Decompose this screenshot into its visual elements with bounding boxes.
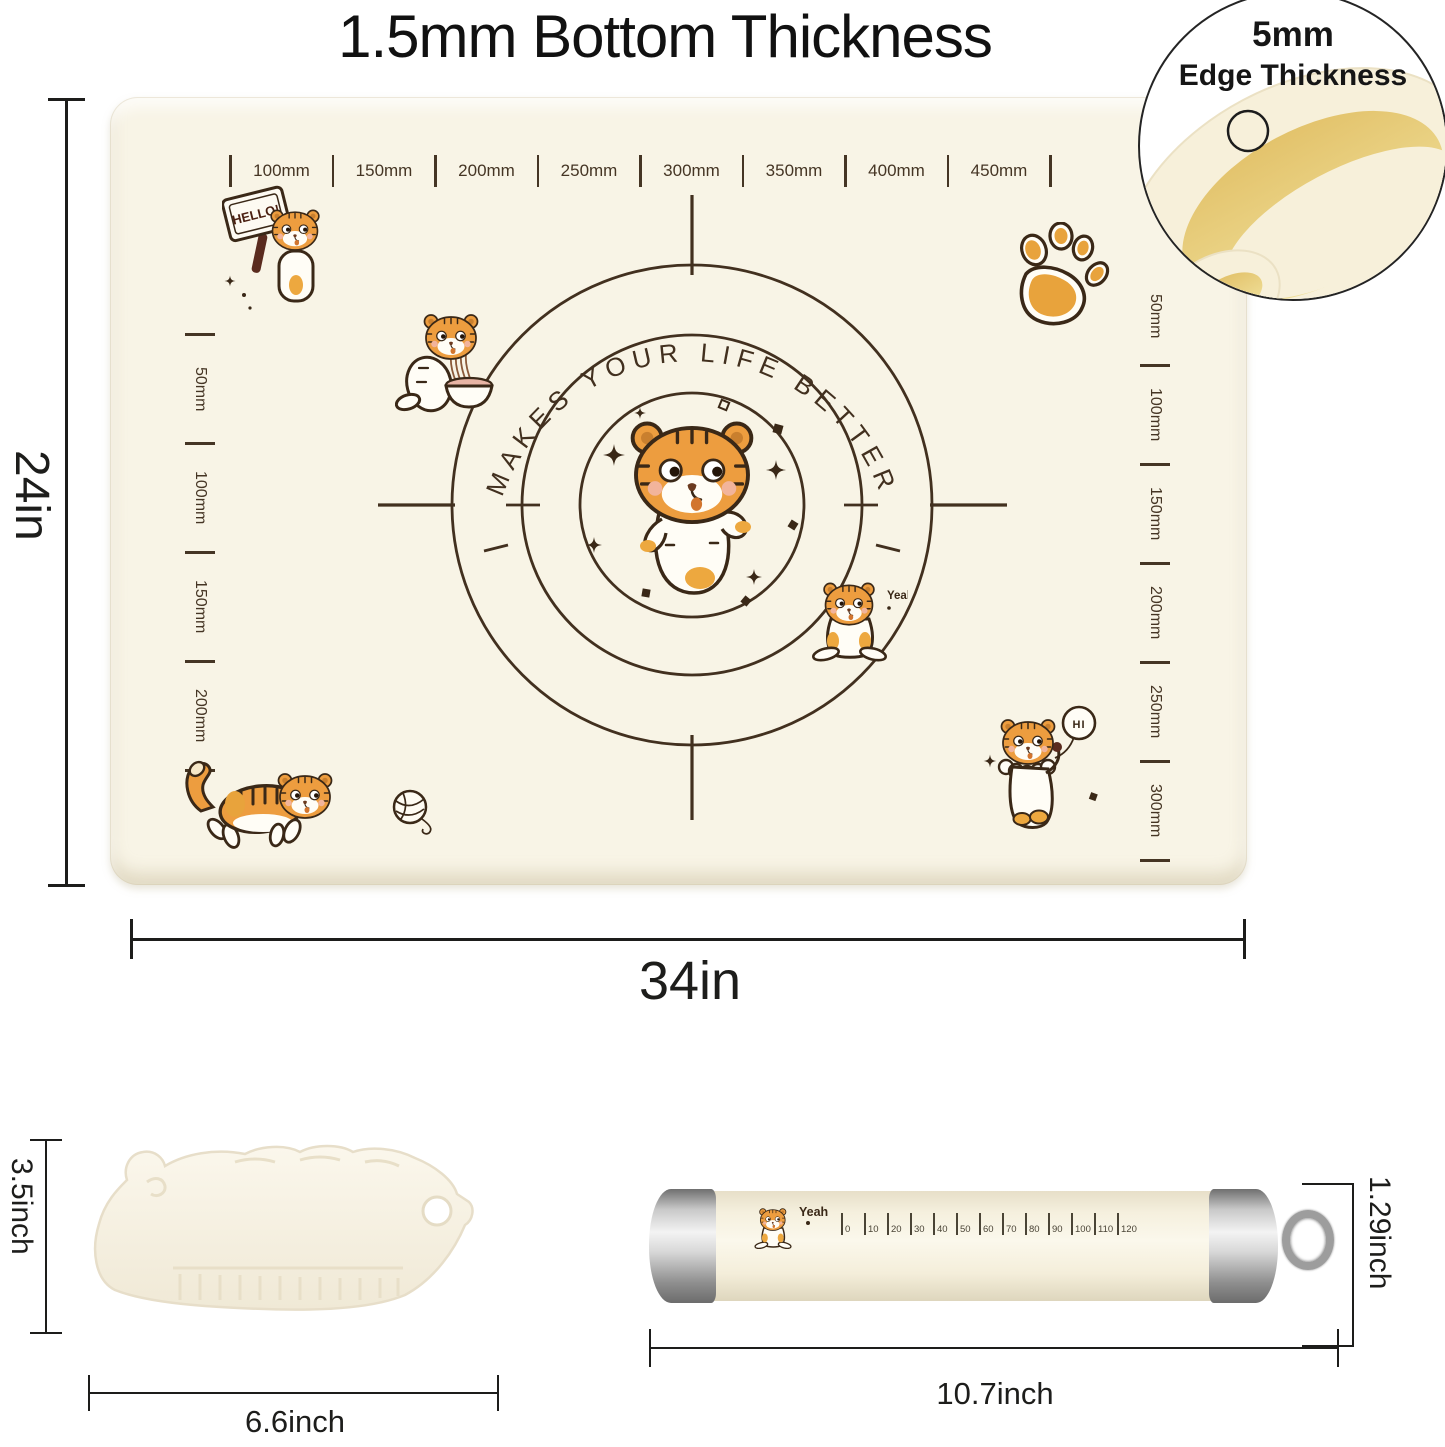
mat-ruler-label: 100mm: [1146, 367, 1164, 463]
pin-scale-number: 110: [1098, 1224, 1113, 1235]
pin-scale-number: 60: [983, 1224, 994, 1235]
mat-height-dim-line: [65, 99, 68, 886]
pin-scale-tick: [887, 1213, 889, 1235]
dough-scraper: [85, 1128, 487, 1340]
mat-ruler-label: 200mm: [1146, 565, 1164, 661]
pin-scale-tick: [1071, 1213, 1073, 1235]
mat-height-dim-tick-bottom: [48, 884, 85, 887]
page-title: 1.5mm Bottom Thickness: [0, 2, 1330, 71]
pin-scale-unit: 40: [933, 1213, 956, 1257]
mat-ruler-label: 300mm: [1146, 763, 1164, 859]
pin-length-dim-line: [650, 1347, 1339, 1349]
tiger-hi-sticker: HI: [982, 697, 1102, 847]
scraper-height-dim-tick-bottom: [30, 1332, 62, 1334]
baking-mat: 100mm150mm200mm250mm300mm350mm400mm450mm…: [110, 97, 1247, 885]
pin-scale-tick: [1025, 1213, 1027, 1235]
pin-scale-tick: [864, 1213, 866, 1235]
scraper-hang-hole: [423, 1197, 451, 1225]
scraper-width-dim-line: [89, 1392, 499, 1394]
product-dimension-diagram: 1.5mm Bottom Thickness 100mm150mm200mm25…: [0, 0, 1445, 1447]
mat-ruler-label: 150mm: [191, 554, 209, 660]
yarn-ball-icon: [388, 785, 438, 837]
pin-cap-right: [1209, 1189, 1278, 1303]
pin-scale-number: 10: [868, 1224, 879, 1235]
mat-ruler-label: 100mm: [232, 161, 332, 181]
pin-cap-left: [649, 1189, 716, 1303]
mat-ruler-label: 100mm: [191, 445, 209, 551]
pin-scale-tick: [1048, 1213, 1050, 1235]
edge-thickness-inset: 5mm Edge Thickness: [1138, 0, 1445, 301]
pin-scale-unit: 100: [1071, 1213, 1094, 1257]
mat-center-target: MAKES YOUR LIFE BETTER: [362, 175, 1022, 835]
pin-scale-number: 80: [1029, 1224, 1040, 1235]
pin-scale-unit: 120: [1117, 1213, 1140, 1257]
scraper-height-dim-tick-top: [30, 1139, 62, 1141]
paw-print-icon: [1010, 222, 1110, 330]
pin-diameter-dim-line: [1352, 1184, 1354, 1347]
scraper-width-dim-tick-left: [88, 1375, 90, 1411]
scraper-height-label: 3.5inch: [4, 1158, 38, 1318]
pin-scale-tick: [1117, 1213, 1119, 1235]
mat-ruler-label: 50mm: [191, 336, 209, 442]
pin-scale-number: 0: [845, 1224, 850, 1235]
pin-scale-unit: 10: [864, 1213, 887, 1257]
pin-scale-tick: [1002, 1213, 1004, 1235]
pin-scale-number: 30: [914, 1224, 925, 1235]
pin-scale-unit: 30: [910, 1213, 933, 1257]
mat-ruler-tick: [1140, 859, 1170, 862]
tiger-noodles-sticker: [395, 298, 505, 423]
mat-width-dim-tick-right: [1243, 919, 1246, 959]
scraper-width-dim-tick-right: [497, 1375, 499, 1411]
scraper-width-label: 6.6inch: [190, 1404, 400, 1440]
rolling-pin: Yeah 0102030405060708090100110120: [649, 1189, 1341, 1303]
pin-dot: [806, 1221, 810, 1225]
pin-scale-number: 100: [1075, 1224, 1091, 1235]
pin-scale-unit: 70: [1002, 1213, 1025, 1257]
pin-scale-unit: 110: [1094, 1213, 1117, 1257]
pin-length-dim-tick-left: [649, 1329, 651, 1367]
mat-ruler-label: 150mm: [1146, 466, 1164, 562]
pin-scale-unit: 0: [841, 1213, 864, 1257]
pin-scale-number: 120: [1121, 1224, 1137, 1235]
pin-tiger-graphic: [749, 1203, 801, 1255]
inset-label: Edge Thickness: [1140, 59, 1445, 93]
mat-right-ruler: 50mm100mm150mm200mm250mm300mm: [1138, 268, 1172, 862]
yeah-text: Yeah: [887, 590, 908, 602]
inset-value: 5mm: [1140, 15, 1445, 55]
tiger-running-sticker: [183, 747, 343, 862]
pin-scale-tick: [979, 1213, 981, 1235]
mat-ruler-tick: [1049, 155, 1052, 187]
tiger-hello-sticker: HELLO!: [222, 185, 332, 315]
pin-scale-unit: 90: [1048, 1213, 1071, 1257]
scraper-height-dim-line: [45, 1140, 47, 1334]
tiger-yeah-sticker: Yeah: [803, 575, 908, 665]
pin-scale-number: 70: [1006, 1224, 1017, 1235]
pin-scale-number: 20: [891, 1224, 902, 1235]
mat-left-ruler: 50mm100mm150mm200mm: [183, 333, 217, 772]
mat-ruler-label: 250mm: [1146, 664, 1164, 760]
tiger-center-sticker: [633, 423, 752, 593]
pin-scale-unit: 20: [887, 1213, 910, 1257]
pin-hang-loop: [1282, 1210, 1334, 1270]
pin-diameter-label: 1.29inch: [1362, 1176, 1396, 1354]
pin-scale-unit: 60: [979, 1213, 1002, 1257]
pin-yeah-text: Yeah: [799, 1205, 828, 1219]
mat-height-label: 24in: [4, 450, 59, 590]
pin-diameter-dim-tick-top: [1302, 1183, 1354, 1185]
mat-width-dim-line: [131, 938, 1245, 941]
pin-scale-tick: [933, 1213, 935, 1235]
mat-width-label: 34in: [565, 950, 815, 1012]
pin-scale-number: 50: [960, 1224, 971, 1235]
mat-height-dim-tick-top: [48, 98, 85, 101]
pin-scale-number: 40: [937, 1224, 948, 1235]
pin-diameter-dim-tick-bottom: [1302, 1345, 1354, 1347]
pin-scale-tick: [956, 1213, 958, 1235]
pin-scale-unit: 80: [1025, 1213, 1048, 1257]
hi-balloon-text: HI: [1073, 719, 1086, 731]
pin-length-label: 10.7inch: [885, 1376, 1105, 1412]
pin-scale-unit: 50: [956, 1213, 979, 1257]
pin-length-dim-tick-right: [1337, 1329, 1339, 1367]
pin-measuring-scale: 0102030405060708090100110120: [841, 1213, 1140, 1257]
pin-scale-tick: [841, 1213, 843, 1235]
pin-scale-number: 90: [1052, 1224, 1063, 1235]
pin-scale-tick: [1094, 1213, 1096, 1235]
pin-scale-tick: [910, 1213, 912, 1235]
mat-width-dim-tick-left: [130, 919, 133, 959]
